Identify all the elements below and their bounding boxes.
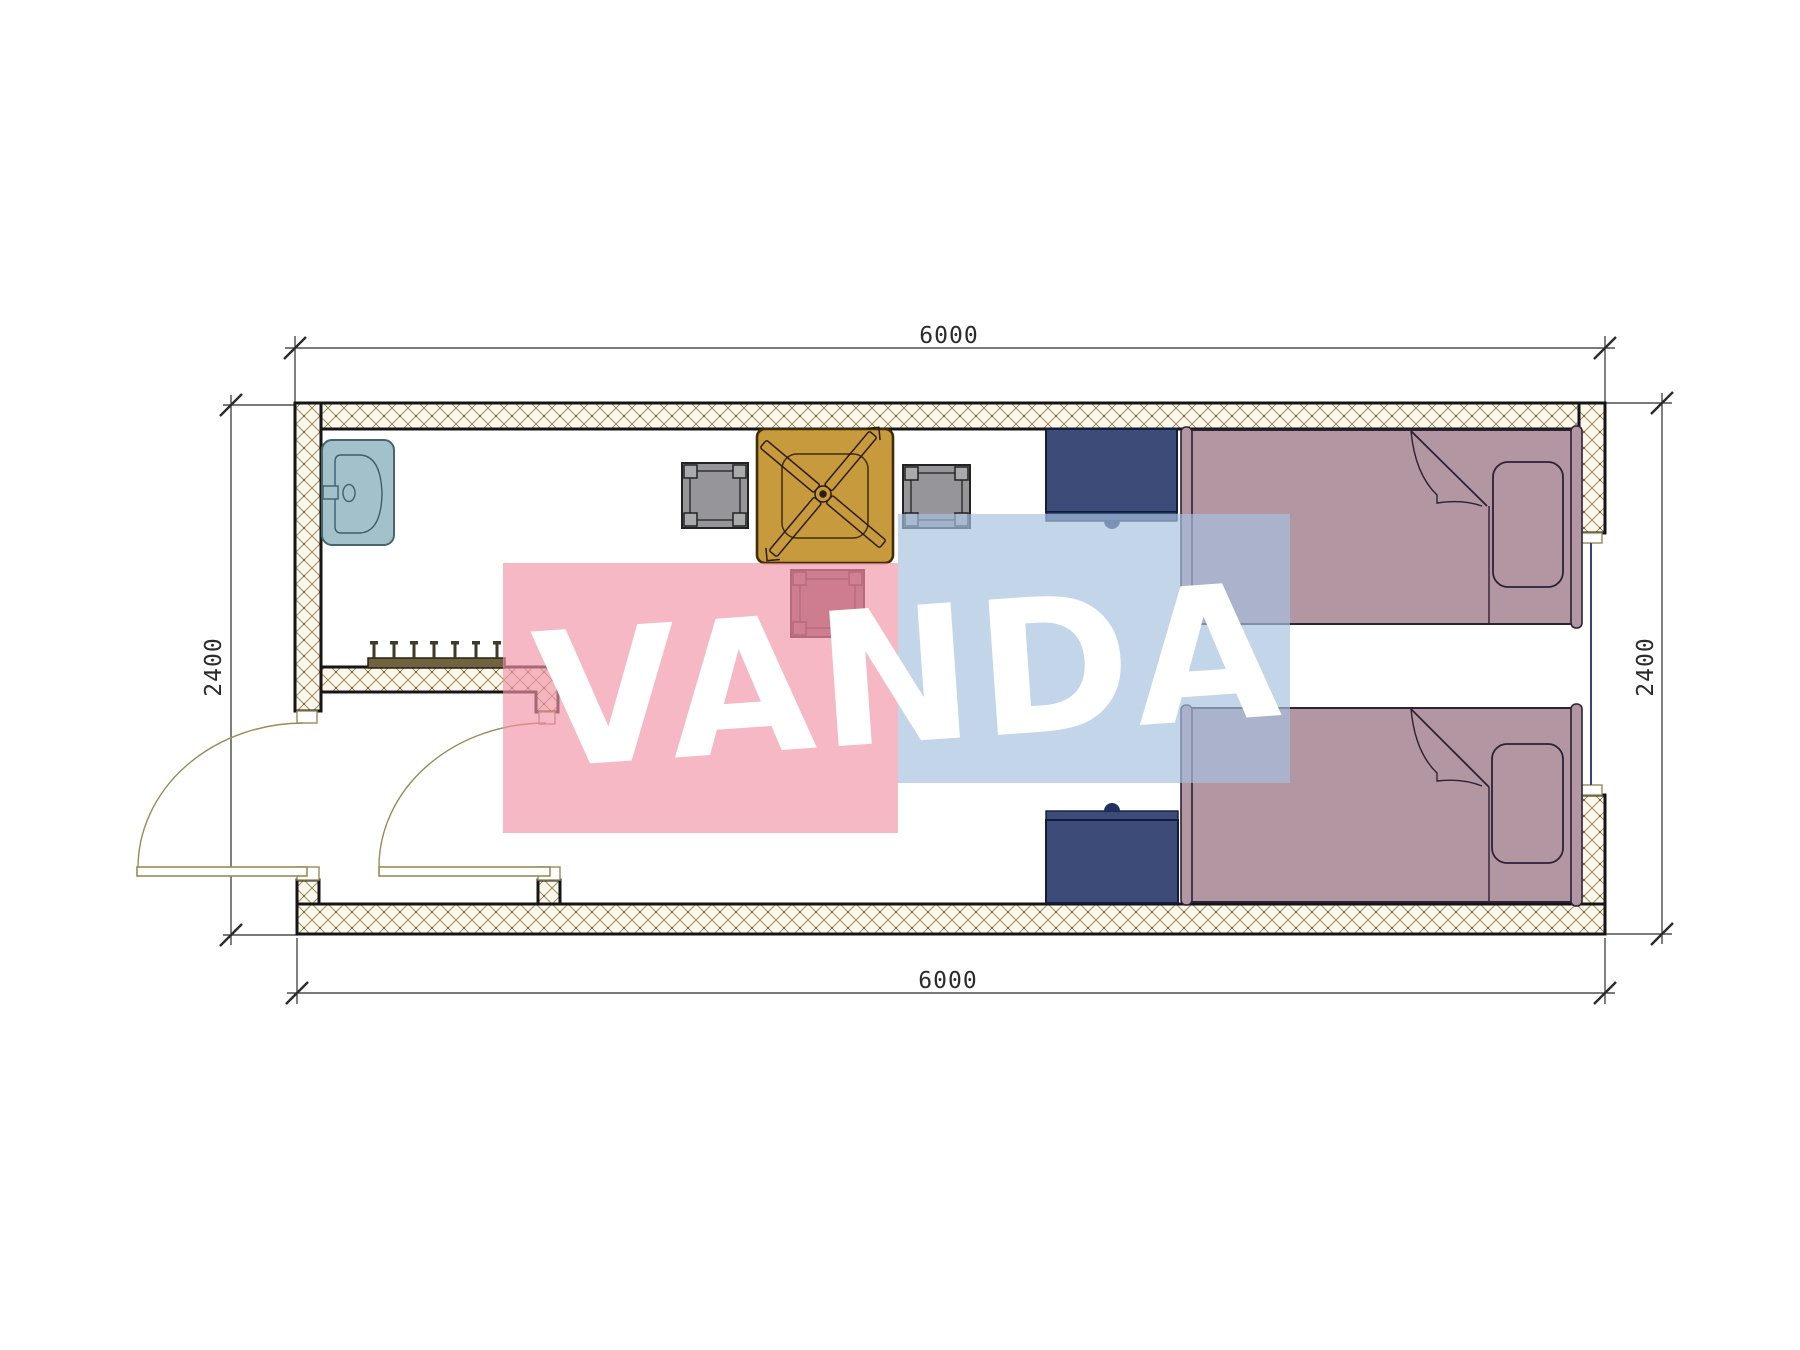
nightstand-bottom <box>1046 803 1178 903</box>
dimension-right-label: 2400 <box>1633 637 1659 696</box>
door-swing-arc-left <box>138 723 303 868</box>
bed-headboard <box>1571 426 1582 628</box>
entry-doors <box>137 723 550 876</box>
coat-rack-icon <box>368 641 505 668</box>
wall-left <box>295 403 321 711</box>
wall-bottom <box>297 904 1605 934</box>
table-with-fan <box>757 422 893 567</box>
stool-gray-left <box>682 463 748 528</box>
floor-plan-canvas: 6000 6000 2400 2400 <box>0 0 1800 1350</box>
dimension-bottom-label: 6000 <box>918 968 977 994</box>
door-jamb-post-right <box>538 880 560 904</box>
dimension-left-label: 2400 <box>201 637 227 696</box>
dimension-top-label: 6000 <box>919 323 978 349</box>
wall-top <box>295 403 1605 429</box>
faucet-icon <box>323 486 338 499</box>
bed-headboard <box>1571 704 1582 906</box>
door-leaf-right <box>379 867 550 876</box>
wall-right-upper <box>1579 403 1605 533</box>
door-jamb-post-left <box>297 880 319 904</box>
sink <box>322 440 394 545</box>
door-leaf-left <box>137 867 307 876</box>
